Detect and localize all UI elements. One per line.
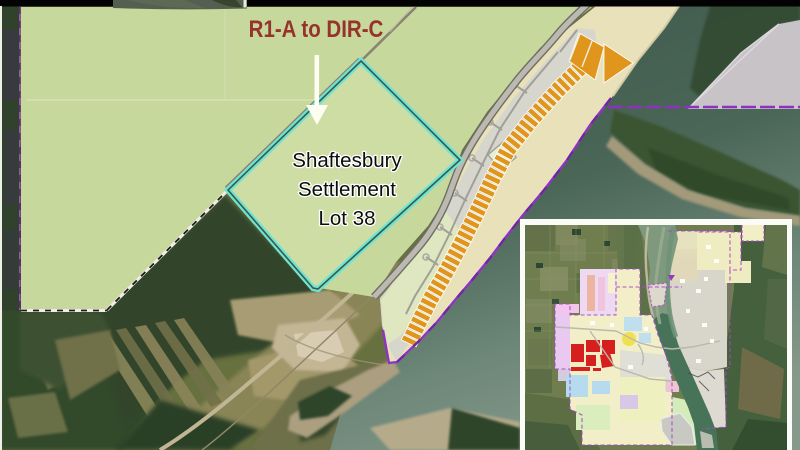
- svg-text:Shaftesbury: Shaftesbury: [292, 149, 402, 172]
- svg-text:R1-A to DIR-C: R1-A to DIR-C: [249, 16, 384, 43]
- svg-text:Lot 38: Lot 38: [319, 207, 376, 230]
- svg-text:Settlement: Settlement: [298, 178, 396, 201]
